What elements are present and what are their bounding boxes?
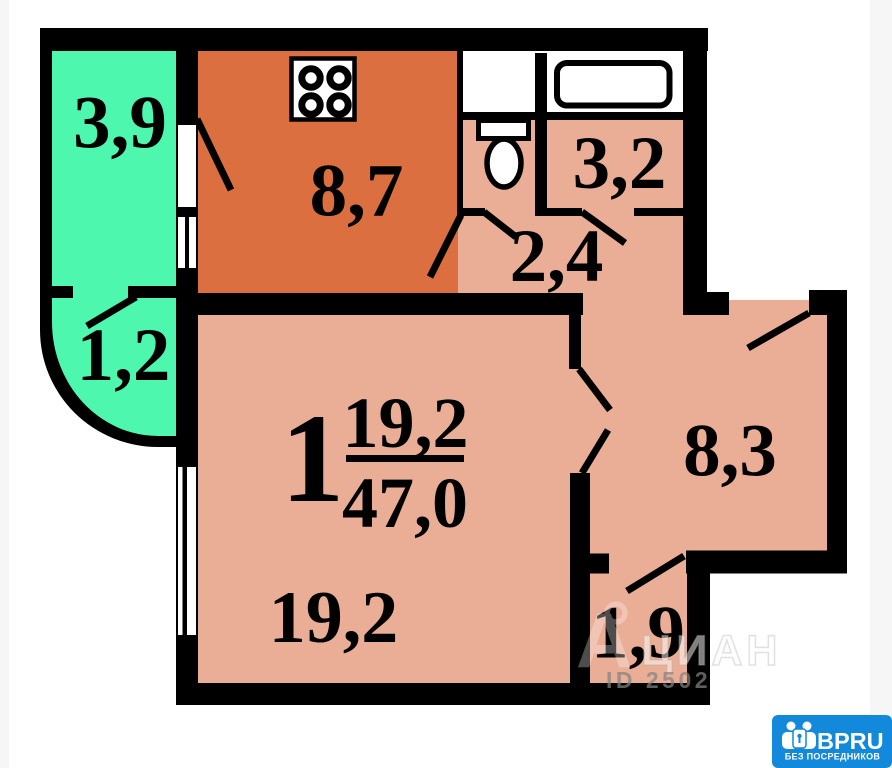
svg-text:БЕЗ ПОСРЕДНИКОВ: БЕЗ ПОСРЕДНИКОВ [785,752,881,762]
svg-text:1,2: 1,2 [77,314,171,397]
svg-text:19,2: 19,2 [269,577,399,659]
svg-text:19,2: 19,2 [343,383,469,463]
svg-text:BPRU: BPRU [817,728,884,754]
svg-text:ID 2502: ID 2502 [606,667,711,693]
svg-text:8,7: 8,7 [310,150,404,233]
svg-text:1: 1 [281,389,345,529]
svg-text:2,4: 2,4 [510,215,604,298]
svg-text:3,2: 3,2 [573,122,667,205]
svg-text:8,3: 8,3 [683,410,777,493]
svg-text:3,9: 3,9 [73,82,167,165]
svg-text:47,0: 47,0 [342,463,468,543]
